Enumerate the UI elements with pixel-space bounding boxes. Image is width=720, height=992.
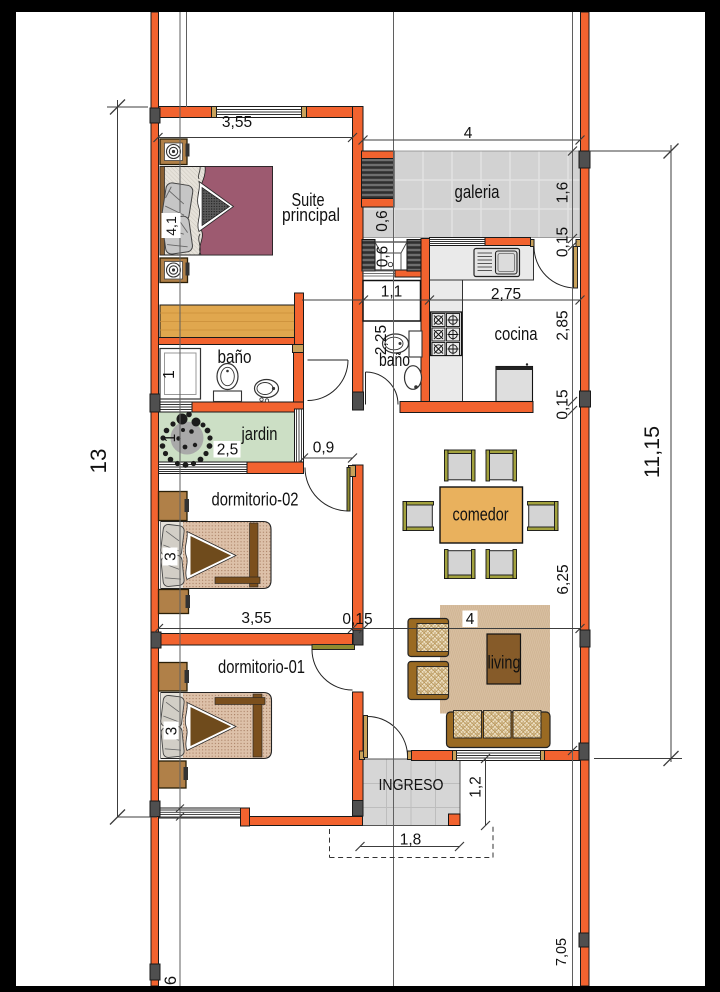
- svg-text:dormitorio-01: dormitorio-01: [218, 657, 305, 677]
- svg-text:2,25: 2,25: [373, 325, 390, 355]
- svg-text:3: 3: [163, 552, 180, 561]
- svg-text:0,15: 0,15: [555, 389, 572, 419]
- svg-text:11,15: 11,15: [640, 426, 664, 478]
- svg-text:0,9: 0,9: [313, 440, 335, 457]
- svg-text:3,55: 3,55: [222, 114, 252, 131]
- svg-text:principal: principal: [282, 205, 340, 225]
- svg-text:3,55: 3,55: [241, 610, 271, 627]
- svg-text:7,05: 7,05: [554, 938, 570, 966]
- svg-text:6: 6: [162, 976, 180, 985]
- svg-text:1,1: 1,1: [381, 284, 403, 301]
- svg-text:2,85: 2,85: [555, 310, 572, 340]
- svg-text:4: 4: [464, 125, 473, 142]
- svg-text:jardin: jardin: [241, 424, 278, 444]
- svg-text:1: 1: [161, 370, 178, 379]
- svg-text:3: 3: [164, 727, 181, 736]
- svg-text:1: 1: [162, 434, 179, 443]
- svg-text:1,2: 1,2: [468, 776, 485, 798]
- svg-text:2,75: 2,75: [491, 286, 521, 303]
- svg-text:0,6: 0,6: [375, 246, 392, 268]
- svg-text:4: 4: [466, 611, 475, 628]
- svg-text:0,6: 0,6: [374, 210, 391, 232]
- svg-text:1,8: 1,8: [400, 832, 422, 849]
- svg-text:baño: baño: [218, 347, 252, 367]
- svg-text:4,1: 4,1: [163, 216, 179, 236]
- svg-text:cocina: cocina: [495, 324, 539, 344]
- svg-text:dormitorio-02: dormitorio-02: [212, 490, 299, 510]
- svg-text:INGRESO: INGRESO: [379, 777, 444, 794]
- svg-text:2,5: 2,5: [217, 442, 239, 459]
- svg-text:living: living: [488, 653, 521, 673]
- svg-text:13: 13: [86, 448, 111, 473]
- svg-text:galeria: galeria: [455, 182, 501, 202]
- svg-text:6,25: 6,25: [555, 564, 572, 594]
- svg-text:0,15: 0,15: [555, 227, 572, 257]
- svg-text:0,15: 0,15: [342, 611, 372, 628]
- svg-text:comedor: comedor: [453, 505, 509, 525]
- svg-text:1,6: 1,6: [555, 182, 572, 204]
